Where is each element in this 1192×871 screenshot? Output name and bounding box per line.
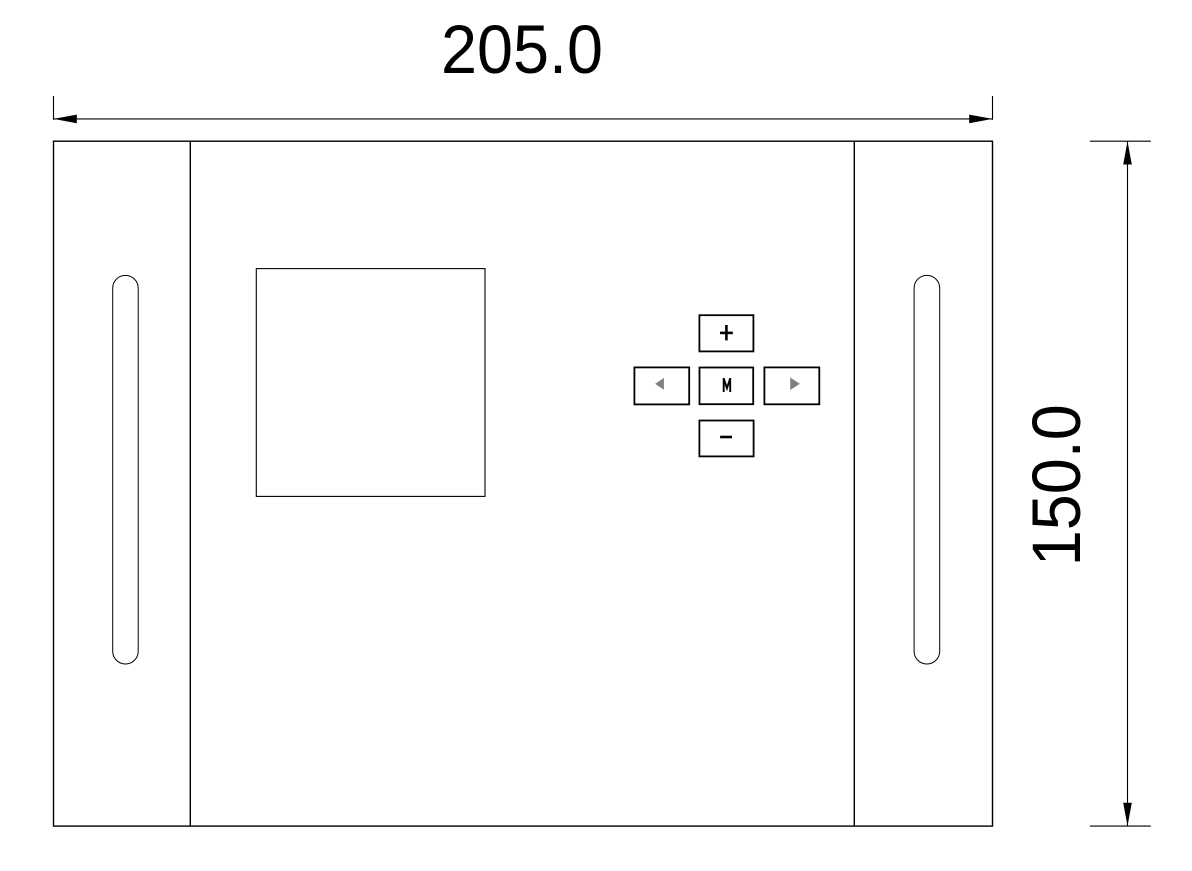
svg-text:205.0: 205.0 (441, 11, 603, 88)
svg-text:150.0: 150.0 (1018, 404, 1095, 566)
